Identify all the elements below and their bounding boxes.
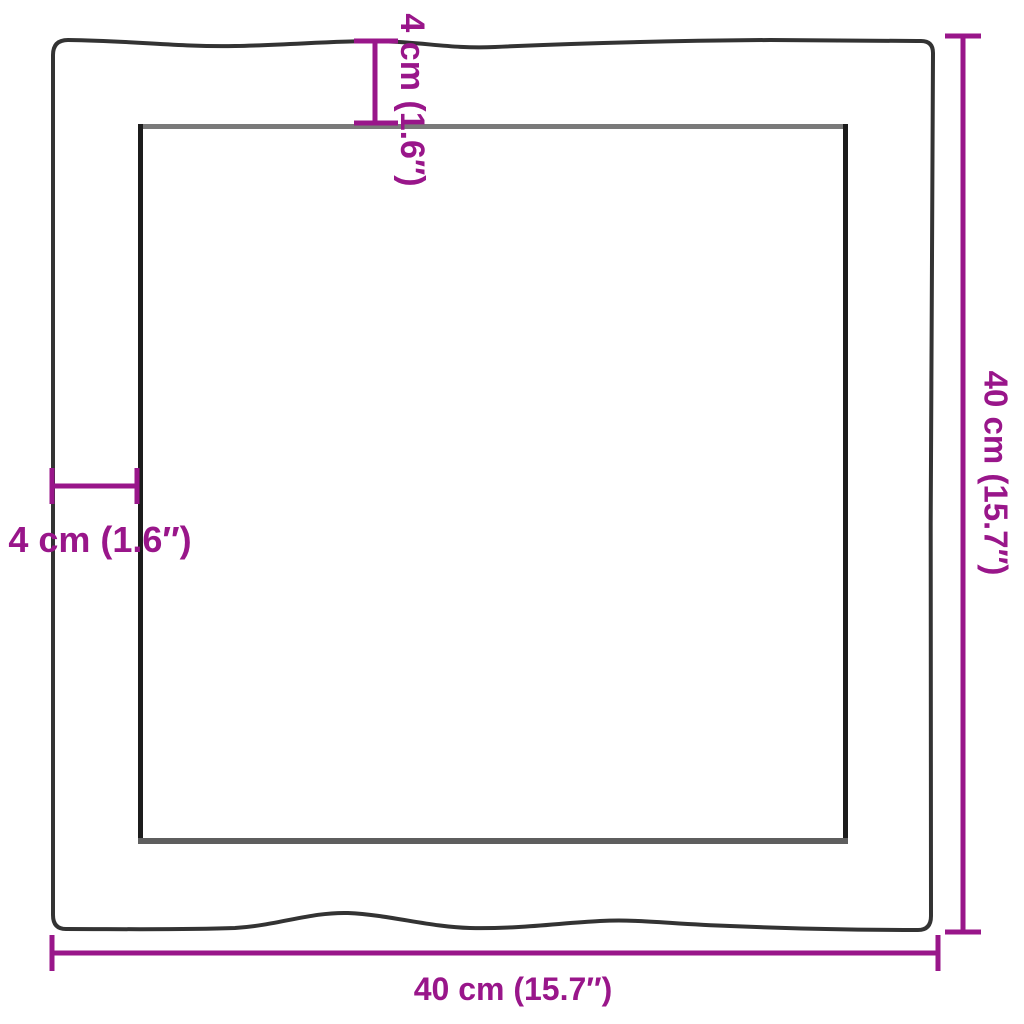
dimension-label-left-thickness: 4 cm (1.6″) [8,522,191,558]
dimension-line-bottom [52,935,938,971]
dimension-line-top [354,41,398,123]
dimension-label-top-thickness: 4 cm (1.6″) [395,13,429,186]
dimension-line-right [945,36,981,932]
dimension-label-right-height: 40 cm (15.7″) [980,371,1013,576]
diagram-linework [0,0,1024,1024]
dimension-label-bottom-width: 40 cm (15.7″) [414,973,613,1005]
dimension-line-left [52,468,137,504]
dimension-diagram: 4 cm (1.6″) 4 cm (1.6″) 40 cm (15.7″) 40… [0,0,1024,1024]
outer-edge-outline [53,40,933,930]
